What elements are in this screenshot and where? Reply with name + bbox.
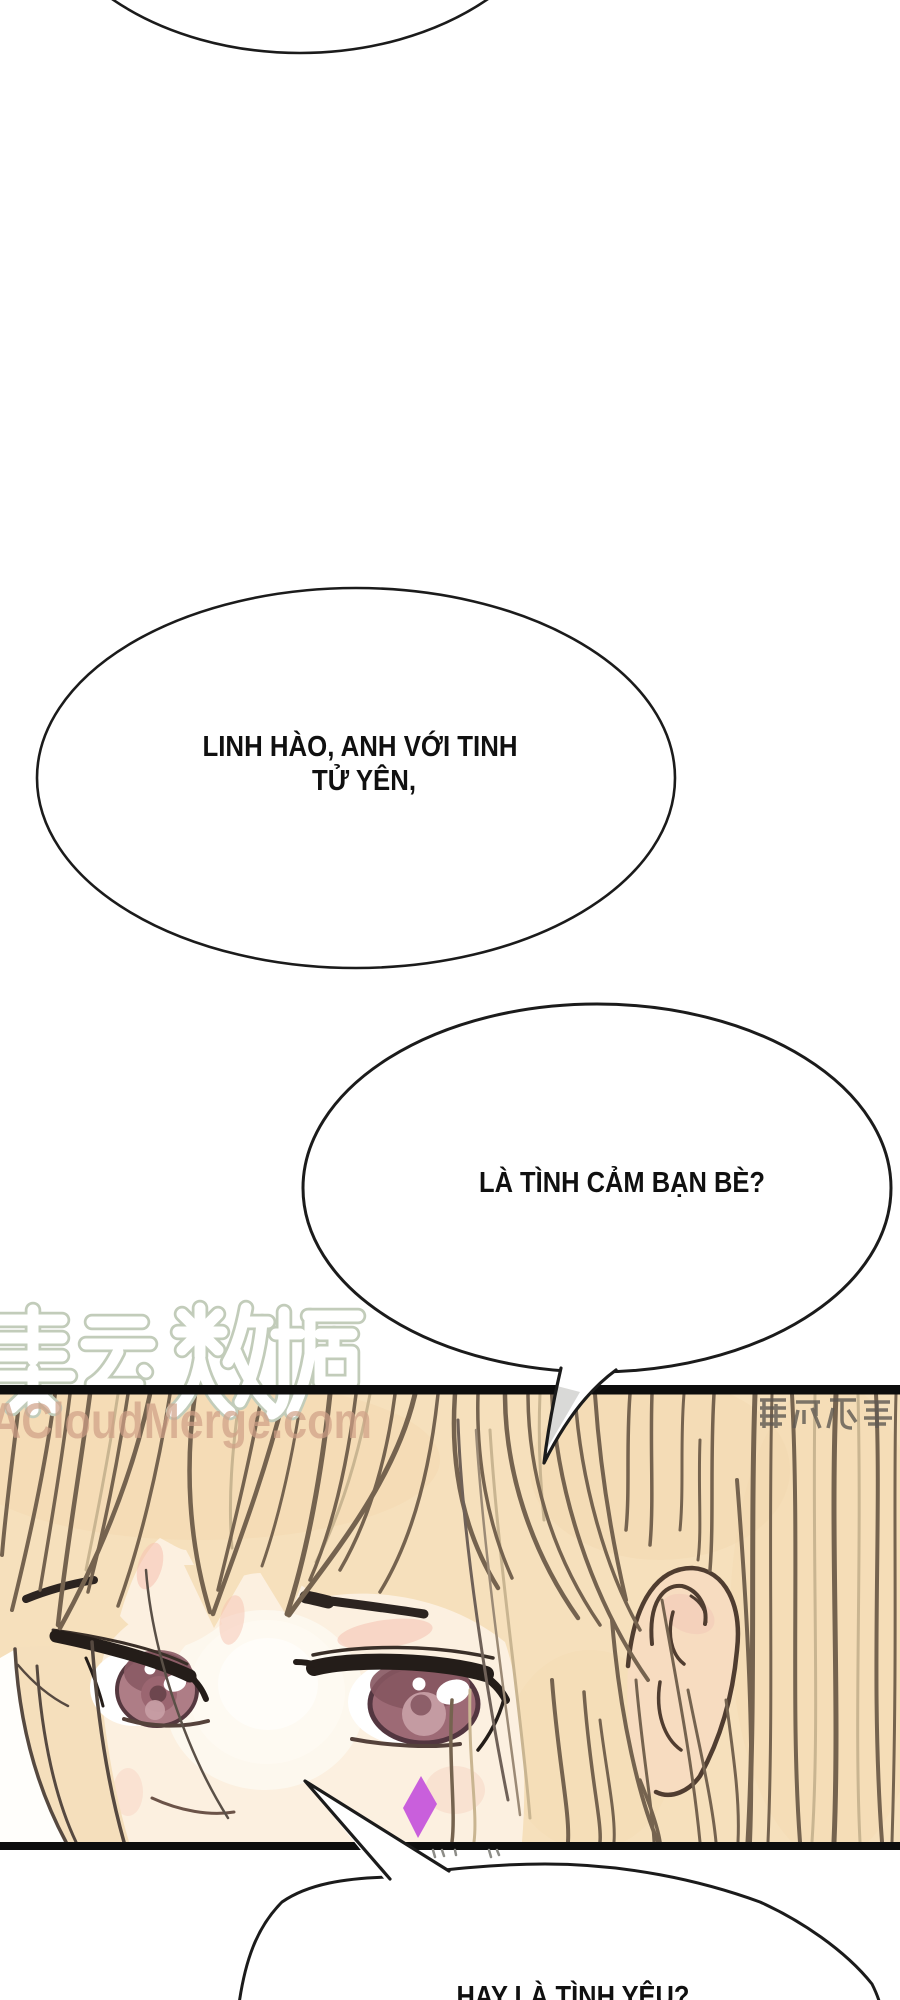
svg-text:LINH HÀO, ANH VỚI TINH: LINH HÀO, ANH VỚI TINH [203, 729, 518, 763]
svg-text:ACloudMerge.com: ACloudMerge.com [0, 1393, 372, 1449]
svg-text:HAY LÀ TÌNH YÊU?: HAY LÀ TÌNH YÊU? [457, 1979, 690, 2000]
svg-text:TỬ YÊN,: TỬ YÊN, [312, 763, 416, 797]
svg-text:LÀ TÌNH CẢM BẠN BÈ?: LÀ TÌNH CẢM BẠN BÈ? [479, 1165, 765, 1199]
